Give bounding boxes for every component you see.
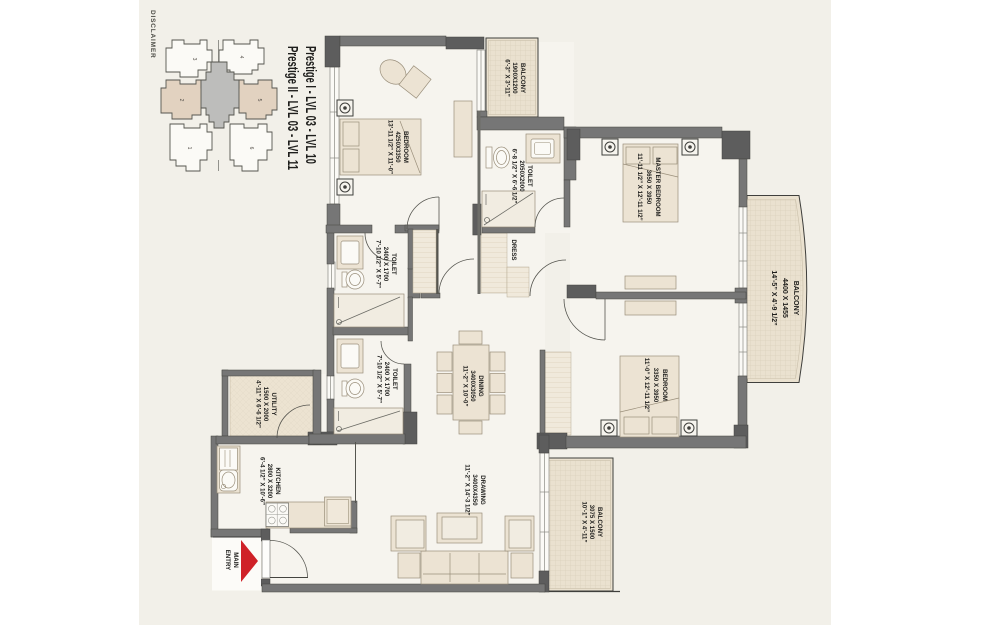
svg-text:Prestige I - LVL 03 - LVL 10: Prestige I - LVL 03 - LVL 10 [302, 46, 319, 164]
svg-text:5: 5 [256, 99, 262, 102]
svg-text:2: 2 [178, 99, 184, 102]
svg-text:BALCONY1900X12006’-3” X 3’-11”: BALCONY1900X12006’-3” X 3’-11” [503, 59, 526, 97]
svg-text:DRESS: DRESS [510, 240, 517, 261]
svg-text:Prestige II - LVL 03 - LVL 11: Prestige II - LVL 03 - LVL 11 [284, 46, 301, 170]
svg-text:BALCONY3075 X 150010’-1” X 4’-: BALCONY3075 X 150010’-1” X 4’-11” [580, 502, 603, 543]
svg-text:6: 6 [248, 147, 254, 150]
svg-text:3: 3 [191, 58, 197, 61]
svg-text:MAINENTRY: MAINENTRY [224, 550, 239, 570]
svg-text:1: 1 [186, 147, 192, 150]
svg-text:4: 4 [238, 56, 244, 59]
svg-text:DISCLAIMER: DISCLAIMER [149, 10, 156, 58]
